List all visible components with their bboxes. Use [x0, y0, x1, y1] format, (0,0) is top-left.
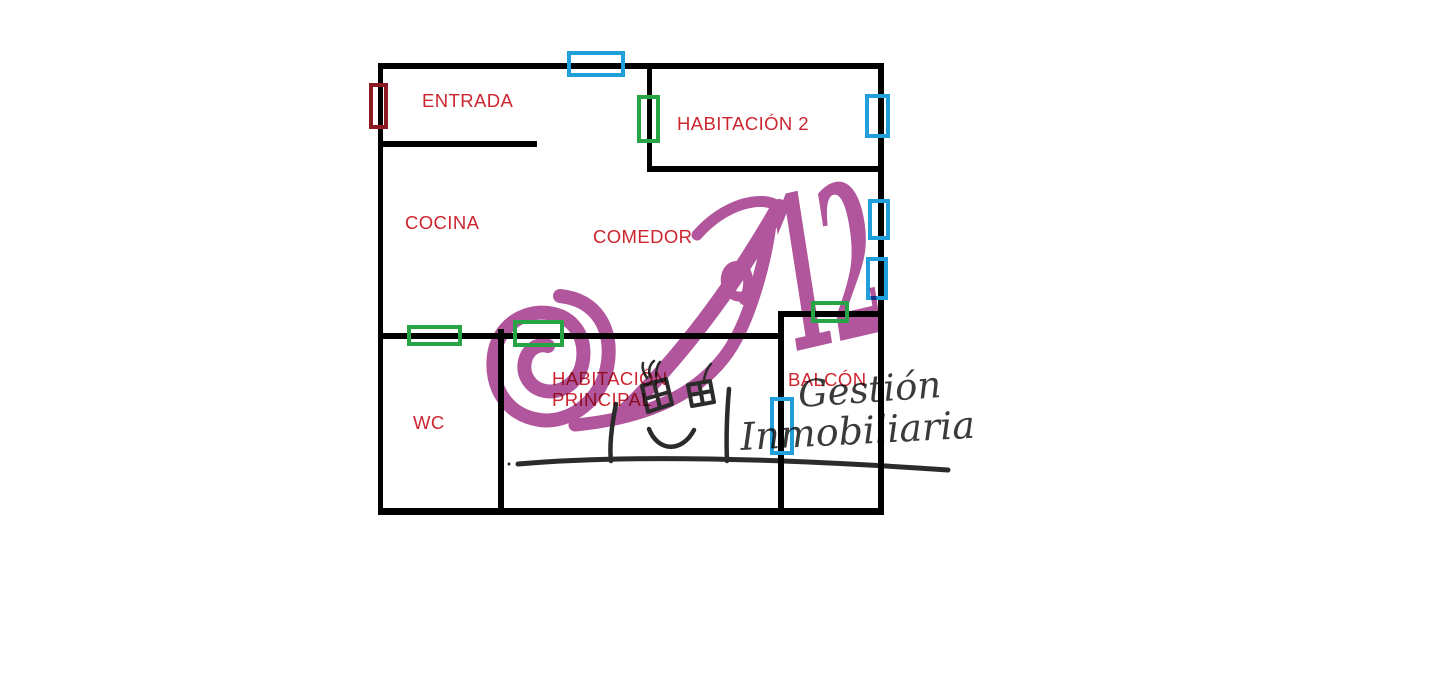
wall-bottom	[378, 508, 884, 515]
watermark: 12 Gestión Inmobiliaria	[493, 138, 976, 470]
floor-plan-canvas: ENTRADA HABITACIÓN 2 COCINA COMEDOR HABI…	[0, 0, 1440, 679]
sketch-smile	[649, 429, 694, 447]
sketch-stroke-left	[610, 404, 616, 461]
room-label-habitacion2: HABITACIÓN 2	[677, 113, 809, 134]
room-label-cocina: COCINA	[405, 212, 480, 233]
watermark-a-spiral	[493, 296, 608, 420]
wall-entrada-bottom	[378, 141, 537, 147]
wall-top	[378, 63, 884, 69]
floor-plan-drawing: ENTRADA HABITACIÓN 2 COCINA COMEDOR HABI…	[0, 0, 1440, 679]
sketch-window-right	[688, 381, 714, 406]
room-label-wc: WC	[413, 412, 445, 433]
room-label-comedor: COMEDOR	[593, 226, 692, 247]
window-marker-habitacion2-right	[867, 96, 888, 136]
wall-habitacion2-left	[647, 66, 652, 172]
sketch-stroke-right	[727, 389, 729, 461]
room-label-entrada: ENTRADA	[422, 90, 513, 111]
sketch-speck	[508, 463, 511, 466]
wall-left	[378, 63, 383, 515]
